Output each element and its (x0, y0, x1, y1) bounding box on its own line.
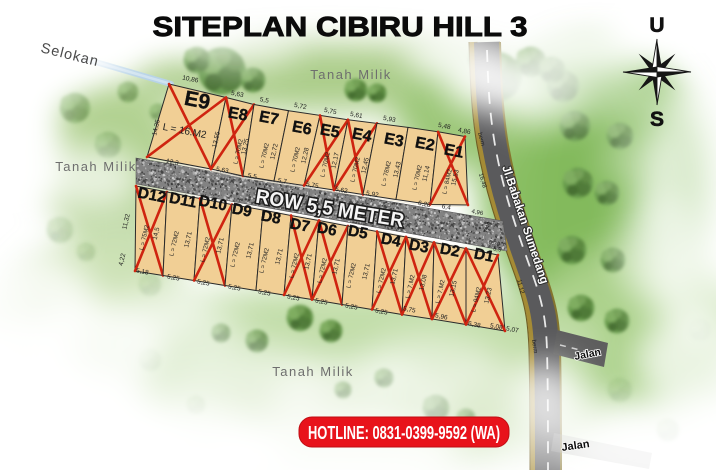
svg-text:Tanah Milik: Tanah Milik (310, 67, 392, 82)
svg-text:5,93: 5,93 (382, 115, 396, 124)
svg-text:5,75: 5,75 (323, 107, 337, 116)
svg-text:5,25: 5,25 (227, 283, 241, 292)
svg-text:Tanah Milik: Tanah Milik (55, 159, 137, 174)
svg-text:5,61: 5,61 (349, 111, 363, 120)
svg-text:SITEPLAN CIBIRU HILL 3: SITEPLAN CIBIRU HILL 3 (153, 11, 528, 42)
svg-text:E9: E9 (182, 87, 212, 114)
svg-text:5,25: 5,25 (196, 278, 210, 287)
svg-text:Tanah Milik: Tanah Milik (272, 364, 354, 379)
svg-text:U: U (649, 14, 664, 37)
svg-text:HOTLINE: 0831-0399-9592 (WA): HOTLINE: 0831-0399-9592 (WA) (308, 423, 500, 443)
svg-text:S: S (650, 108, 664, 131)
